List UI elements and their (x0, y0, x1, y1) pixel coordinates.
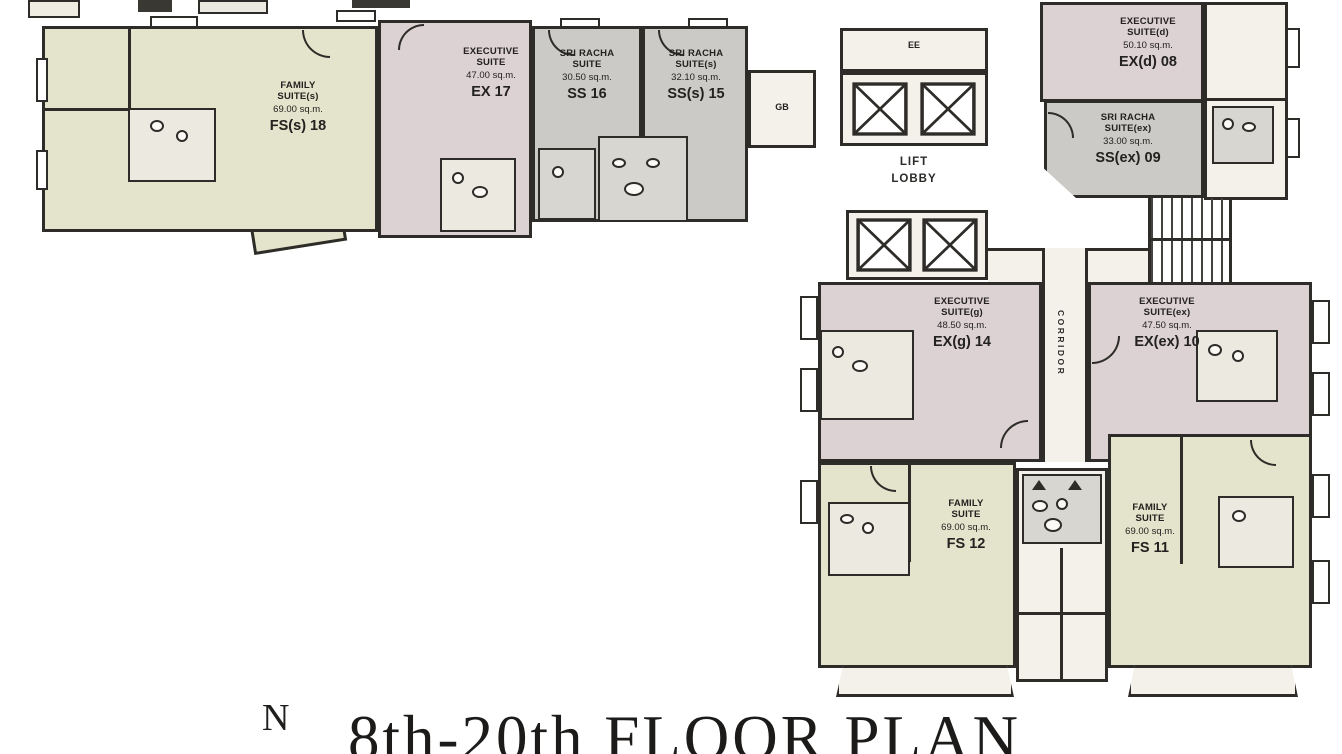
window (800, 296, 818, 340)
unit-code: EX(d) 08 (1086, 54, 1210, 71)
unit-area: 30.50 sq.m. (534, 72, 640, 83)
lift-icon (922, 218, 978, 272)
sink-icon (1056, 498, 1068, 510)
unit-label-ex17: EXECUTIVE SUITE 47.00 sq.m. EX 17 (432, 46, 550, 101)
bathroom-fs18 (128, 108, 216, 182)
sink-icon (1232, 510, 1246, 522)
sink-icon (176, 130, 188, 142)
toilet-icon (862, 522, 874, 534)
unit-area: 47.50 sq.m. (1100, 320, 1234, 331)
unit-area: 47.00 sq.m. (432, 70, 550, 81)
sink-icon (1032, 500, 1048, 512)
unit-code: EX(g) 14 (895, 334, 1029, 351)
unit-name: EXECUTIVE (1100, 296, 1234, 307)
balcony-fs12 (836, 665, 1014, 697)
lift-lobby-line2: LOBBY (846, 171, 982, 188)
unit-name: SUITE(s) (240, 91, 356, 102)
floor-plan: GB EE LIFT LOBBY CORRIDOR (0, 0, 1342, 754)
unit-name: SUITE (1092, 513, 1208, 524)
window (36, 58, 48, 102)
unit-name: FAMILY (240, 80, 356, 91)
wall-fragment (138, 0, 172, 12)
lift-lobby-line1: LIFT (846, 154, 982, 171)
staircase (1148, 198, 1232, 284)
lift-icon (856, 218, 912, 272)
sink-icon (840, 514, 854, 524)
window (1286, 118, 1300, 158)
unit-area: 69.00 sq.m. (908, 522, 1024, 533)
wall-fragment (352, 0, 410, 8)
unit-name: SRI RACHA (534, 48, 640, 59)
unit-label-ss15: SRI RACHA SUITE(s) 32.10 sq.m. SS(s) 15 (644, 48, 748, 103)
step-mark-icon (1068, 480, 1082, 490)
unit-name: EXECUTIVE (895, 296, 1029, 307)
unit-label-ssex09: SRI RACHA SUITE(ex) 33.00 sq.m. SS(ex) 0… (1066, 112, 1190, 167)
toilet-icon (1242, 122, 1256, 132)
unit-code: FS(s) 18 (240, 118, 356, 135)
unit-name: SRI RACHA (1066, 112, 1190, 123)
electrical-room-label: EE (840, 40, 988, 50)
unit-code: EX 17 (432, 84, 550, 101)
toilet-icon (852, 360, 868, 372)
bathroom-fs11 (1218, 496, 1294, 568)
unit-name: SUITE(s) (644, 59, 748, 70)
toilet-icon (624, 182, 644, 196)
unit-name: SRI RACHA (644, 48, 748, 59)
step-mark-icon (1032, 480, 1046, 490)
unit-name: FAMILY (908, 498, 1024, 509)
toilet-icon (472, 186, 488, 198)
unit-name: SUITE(ex) (1100, 307, 1234, 318)
unit-code: SS 16 (534, 86, 640, 103)
window (800, 480, 818, 524)
sink-icon (1222, 118, 1234, 130)
unit-code: FS 12 (908, 536, 1024, 553)
window (1286, 28, 1300, 68)
bathroom-fs12 (828, 502, 910, 576)
unit-area: 32.10 sq.m. (644, 72, 748, 83)
unit-name: SUITE(ex) (1066, 123, 1190, 134)
sink-icon (552, 166, 564, 178)
sink-icon (452, 172, 464, 184)
window (1312, 474, 1330, 518)
lift-lobby-label: LIFT LOBBY (846, 154, 982, 189)
corridor-label: CORRIDOR (1056, 310, 1066, 376)
wall-fragment (198, 0, 268, 14)
unit-label-ss16: SRI RACHA SUITE 30.50 sq.m. SS 16 (534, 48, 640, 103)
unit-area: 33.00 sq.m. (1066, 136, 1190, 147)
interior-wall (128, 26, 131, 110)
bathroom-right (1212, 106, 1274, 164)
unit-label-fs18: FAMILY SUITE(s) 69.00 sq.m. FS(s) 18 (240, 80, 356, 135)
window (800, 368, 818, 412)
unit-code: SS(ex) 09 (1066, 150, 1190, 167)
unit-area: 48.50 sq.m. (895, 320, 1029, 331)
unit-name: SUITE (432, 57, 550, 68)
stair-landing (1150, 238, 1230, 241)
unit-name: FAMILY (1092, 502, 1208, 513)
interior-wall (1207, 98, 1285, 101)
service-rooms-right (1204, 2, 1288, 200)
lift-icon (852, 82, 908, 136)
unit-code: EX(ex) 10 (1100, 334, 1234, 351)
bathroom-ss15 (598, 136, 688, 222)
unit-name: SUITE(d) (1086, 27, 1210, 38)
garbage-room-label: GB (748, 102, 816, 112)
toilet-icon (150, 120, 164, 132)
window (1312, 300, 1330, 344)
lift-icon (920, 82, 976, 136)
sink-icon (832, 346, 844, 358)
unit-code: SS(s) 15 (644, 86, 748, 103)
window (1312, 372, 1330, 416)
unit-code: FS 11 (1092, 540, 1208, 557)
unit-area: 69.00 sq.m. (1092, 526, 1208, 537)
window (688, 18, 728, 28)
unit-area: 69.00 sq.m. (240, 104, 356, 115)
unit-label-exex10: EXECUTIVE SUITE(ex) 47.50 sq.m. EX(ex) 1… (1100, 296, 1234, 351)
unit-name: SUITE (908, 509, 1024, 520)
shaft-divider (1019, 612, 1105, 615)
unit-name: EXECUTIVE (1086, 16, 1210, 27)
unit-label-exd08: EXECUTIVE SUITE(d) 50.10 sq.m. EX(d) 08 (1086, 16, 1210, 71)
unit-label-fs12: FAMILY SUITE 69.00 sq.m. FS 12 (908, 498, 1024, 553)
window (336, 10, 376, 22)
toilet-icon (1232, 350, 1244, 362)
unit-area: 50.10 sq.m. (1086, 40, 1210, 51)
window (1312, 560, 1330, 604)
balcony (28, 0, 80, 18)
sink-icon (612, 158, 626, 168)
window (36, 150, 48, 190)
interior-wall (42, 108, 132, 111)
toilet-icon (1044, 518, 1062, 532)
unit-name: SUITE(g) (895, 307, 1029, 318)
plan-title: 8th-20th FLOOR PLAN (348, 702, 1021, 754)
window (560, 18, 600, 28)
unit-label-exg14: EXECUTIVE SUITE(g) 48.50 sq.m. EX(g) 14 (895, 296, 1029, 351)
unit-label-fs11: FAMILY SUITE 69.00 sq.m. FS 11 (1092, 502, 1208, 557)
north-indicator: N (262, 696, 289, 740)
electrical-room (840, 28, 988, 72)
sink-icon (646, 158, 660, 168)
unit-name: EXECUTIVE (432, 46, 550, 57)
window (150, 16, 198, 28)
balcony-fs11 (1128, 665, 1298, 697)
bathroom-ss16 (538, 148, 596, 220)
unit-name: SUITE (534, 59, 640, 70)
